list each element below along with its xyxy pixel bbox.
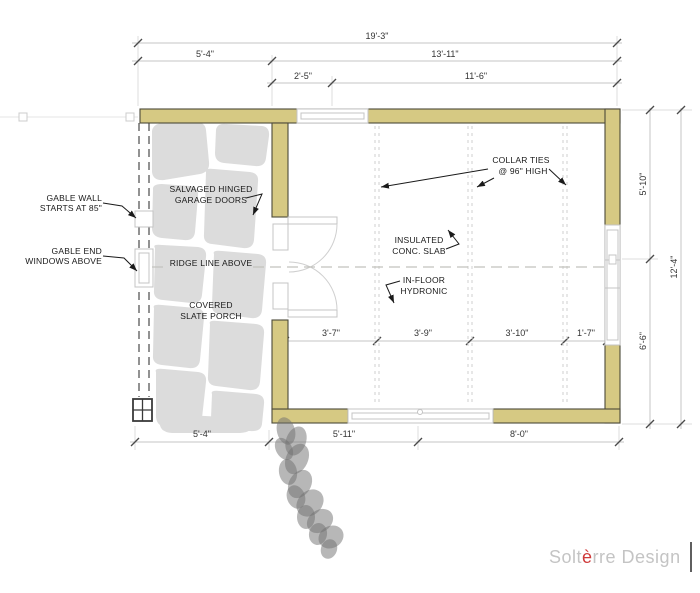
right-window-symbol bbox=[605, 225, 620, 345]
windows bbox=[297, 109, 620, 423]
door-jamb-panel bbox=[273, 224, 288, 250]
label-collar-2: @ 96" HIGH bbox=[498, 166, 547, 176]
label-porch-1: COVERED bbox=[189, 300, 232, 310]
label-ridge: RIDGE LINE ABOVE bbox=[170, 258, 253, 268]
door-swing-arc bbox=[289, 224, 337, 272]
dim-top-overall: 19'-3" bbox=[366, 31, 389, 41]
top-wall bbox=[140, 109, 620, 123]
dim-top-porch: 5'-4" bbox=[196, 49, 214, 59]
label-gable-end-2: WINDOWS ABOVE bbox=[25, 256, 102, 266]
slab-leader bbox=[446, 230, 459, 249]
label-slab-2: CONC. SLAB bbox=[392, 246, 446, 256]
door-jamb-panel bbox=[273, 283, 288, 309]
label-porch-2: SLATE PORCH bbox=[180, 311, 242, 321]
bottom-wall-right bbox=[493, 409, 620, 423]
dim-top-offset: 2'-5" bbox=[294, 71, 312, 81]
label-hydronic-1: IN-FLOOR bbox=[403, 275, 445, 285]
dim-collar-3: 3'-10" bbox=[506, 328, 529, 338]
gable-wall-leader bbox=[103, 203, 136, 218]
dim-right-overall: 12'-4" bbox=[669, 256, 679, 279]
label-gable-end-1: GABLE END bbox=[52, 246, 102, 256]
dim-bottom-right: 8'-0" bbox=[510, 429, 528, 439]
floorplan-svg: 19'-3" 5'-4" 13'-11" 2'-5" 11'-6" 5'-4" … bbox=[0, 0, 700, 593]
top-window-symbol bbox=[297, 109, 368, 123]
solterre-logo: Soltèrre Design bbox=[549, 542, 692, 572]
logo-text-1: Solt bbox=[549, 547, 582, 568]
collar-tie-leader-2 bbox=[477, 178, 494, 187]
dim-collar-2: 3'-9" bbox=[414, 328, 432, 338]
dim-right-upper: 5'-10" bbox=[638, 173, 648, 196]
label-slab-1: INSULATED bbox=[395, 235, 444, 245]
hydronic-leader bbox=[386, 281, 400, 303]
dim-top-main: 13'-11" bbox=[431, 49, 458, 59]
door-swing-arc bbox=[289, 262, 337, 310]
label-garage-1: SALVAGED HINGED bbox=[170, 184, 253, 194]
bottom-window-symbol bbox=[348, 409, 493, 423]
dim-bottom-porch: 5'-4" bbox=[193, 429, 211, 439]
dim-collar-1: 3'-7" bbox=[322, 328, 340, 338]
label-gable-wall-2: STARTS AT 85" bbox=[40, 203, 102, 213]
middle-wall-lower bbox=[272, 320, 288, 409]
label-garage-2: GARAGE DOORS bbox=[175, 195, 247, 205]
middle-wall-upper bbox=[272, 123, 288, 217]
dim-top-span: 11'-6" bbox=[465, 71, 487, 81]
label-gable-wall-1: GABLE WALL bbox=[46, 193, 102, 203]
door-leaf-top bbox=[288, 217, 337, 224]
dim-bottom-mid: 5'-11" bbox=[333, 429, 355, 439]
porch-stones bbox=[152, 122, 269, 433]
dim-collar-4: 1'-7" bbox=[577, 328, 595, 338]
label-hydronic-2: HYDRONIC bbox=[401, 286, 448, 296]
floorplan-page: 19'-3" 5'-4" 13'-11" 2'-5" 11'-6" 5'-4" … bbox=[0, 0, 700, 593]
logo-accent-letter: è bbox=[582, 547, 593, 568]
logo-bar bbox=[690, 542, 692, 572]
gable-wall-dashed bbox=[135, 123, 153, 397]
dim-right-lower: 6'-6" bbox=[638, 332, 648, 350]
gable-end-leader bbox=[103, 256, 137, 271]
label-collar-1: COLLAR TIES bbox=[492, 155, 549, 165]
reference-line bbox=[0, 113, 138, 121]
gable-end-window-symbol bbox=[135, 211, 153, 227]
porch-post bbox=[133, 399, 152, 421]
logo-text-2: rre Design bbox=[593, 547, 681, 568]
door-leaf-bottom bbox=[288, 310, 337, 317]
